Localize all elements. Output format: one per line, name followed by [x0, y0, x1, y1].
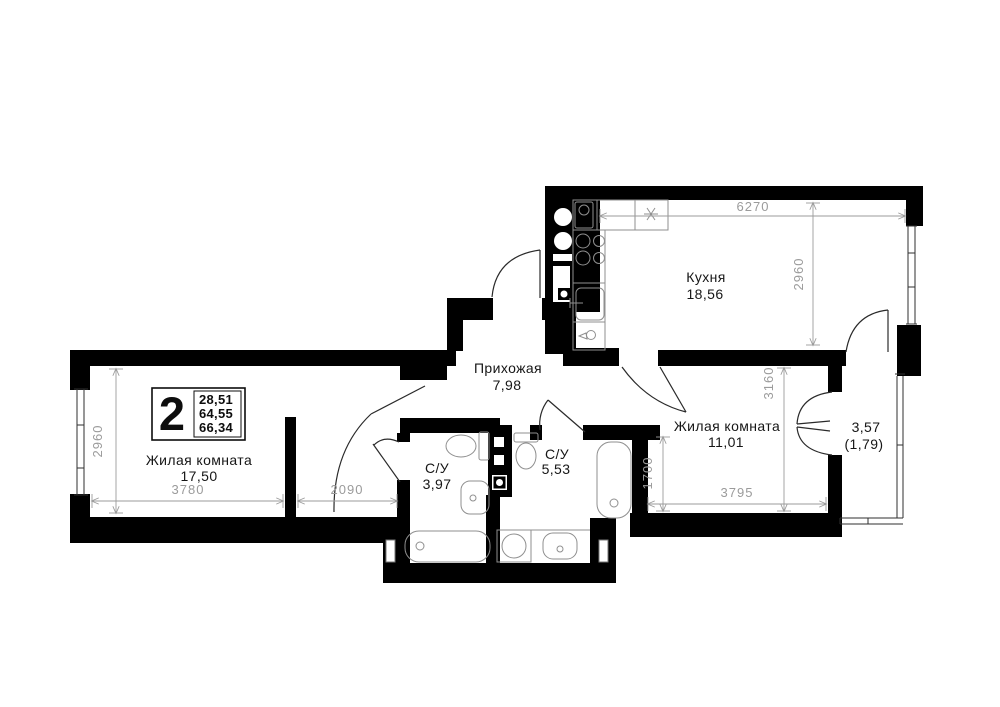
- floor-plan-svg: 6270 2960 2960 3780 2090 3795 1700 3160 …: [0, 0, 1000, 707]
- dim-living2-width: 3795: [721, 485, 754, 500]
- washbasin-icon: [461, 481, 489, 514]
- dim-alcove-width: 2090: [331, 482, 364, 497]
- label-kitchen: Кухня 18,56: [686, 269, 725, 302]
- living2-name: Жилая комната: [674, 418, 780, 434]
- legend-area-2: 64,55: [199, 406, 233, 421]
- fixtures: [405, 200, 668, 562]
- kitchen-area: 18,56: [686, 286, 723, 302]
- bath1-area: 3,97: [423, 476, 452, 492]
- label-balcony: 3,57 (1,79): [845, 419, 884, 452]
- dim-living2-inner-depth: 1700: [640, 457, 655, 490]
- hallway-area: 7,98: [493, 377, 522, 393]
- toilet-icon: [446, 432, 489, 460]
- kitchen-kettle-icon: [579, 331, 596, 340]
- hob-icon: [644, 208, 658, 220]
- washbasin2-icon: [543, 533, 577, 559]
- legend-area-1: 28,51: [199, 392, 233, 407]
- legend-room-count: 2: [159, 387, 185, 440]
- hallway-name: Прихожая: [474, 360, 542, 376]
- dim-living1-depth: 2960: [90, 425, 105, 458]
- dim-kitchen-width: 6270: [737, 199, 770, 214]
- living2-door-icon: [622, 367, 686, 412]
- label-bath1: С/У 3,97: [423, 460, 452, 492]
- dim-living1-width: 3780: [172, 482, 205, 497]
- entrance-door-icon: [492, 250, 540, 298]
- legend-box: 2 28,51 64,55 66,34: [152, 387, 245, 440]
- living1-area: 17,50: [180, 468, 217, 484]
- bath1-name: С/У: [425, 460, 449, 476]
- living2-area: 11,01: [708, 434, 744, 450]
- label-living1: Жилая комната 17,50: [146, 452, 252, 484]
- bath2-name: С/У: [545, 446, 569, 462]
- dim-kitchen-depth: 2960: [791, 258, 806, 291]
- bath2-door-icon: [540, 400, 585, 432]
- balcony-area-reduced: (1,79): [845, 436, 884, 452]
- legend-area-3: 66,34: [199, 420, 234, 435]
- balcony-area: 3,57: [852, 419, 881, 435]
- kitchen-balcony-door-icon: [846, 310, 888, 352]
- label-bath2: С/У 5,53: [542, 446, 571, 477]
- bath1-door-icon: [373, 439, 400, 482]
- label-hallway: Прихожая 7,98: [474, 360, 542, 393]
- bathtub2-icon: [597, 442, 631, 518]
- bathtub-icon: [405, 531, 490, 562]
- dim-living2-full-depth: 3160: [761, 367, 776, 400]
- label-living2: Жилая комната 11,01: [674, 418, 780, 450]
- balcony-french-door-icon: [797, 392, 832, 455]
- kitchen-name: Кухня: [686, 269, 725, 285]
- bath2-area: 5,53: [542, 461, 571, 477]
- living1-name: Жилая комната: [146, 452, 252, 468]
- floor-plan-page: 6270 2960 2960 3780 2090 3795 1700 3160 …: [0, 0, 1000, 707]
